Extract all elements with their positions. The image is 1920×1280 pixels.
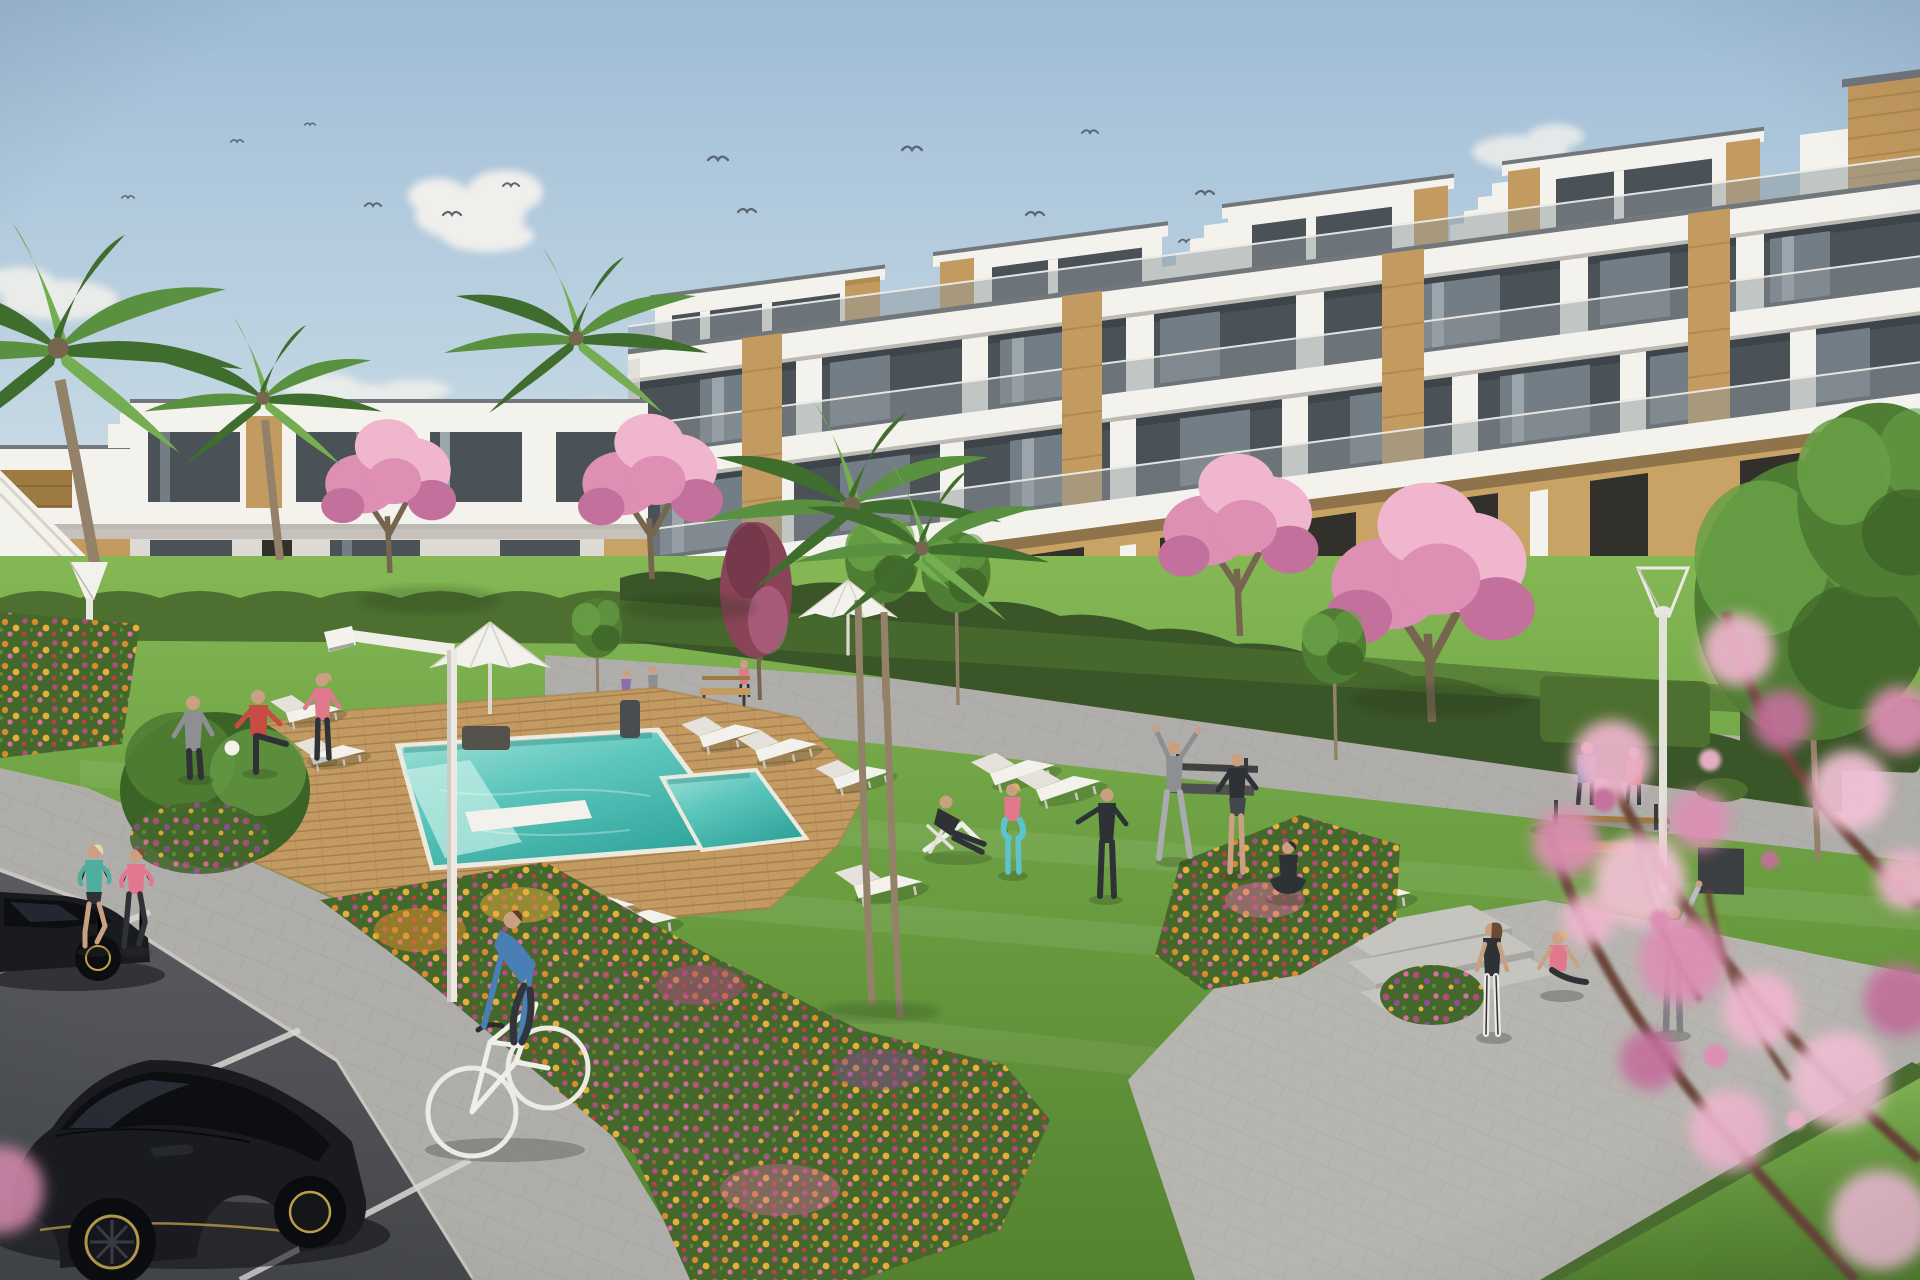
vignette [0, 0, 1920, 1280]
rendered-scene [0, 0, 1920, 1280]
scene-canvas [0, 0, 1920, 1280]
